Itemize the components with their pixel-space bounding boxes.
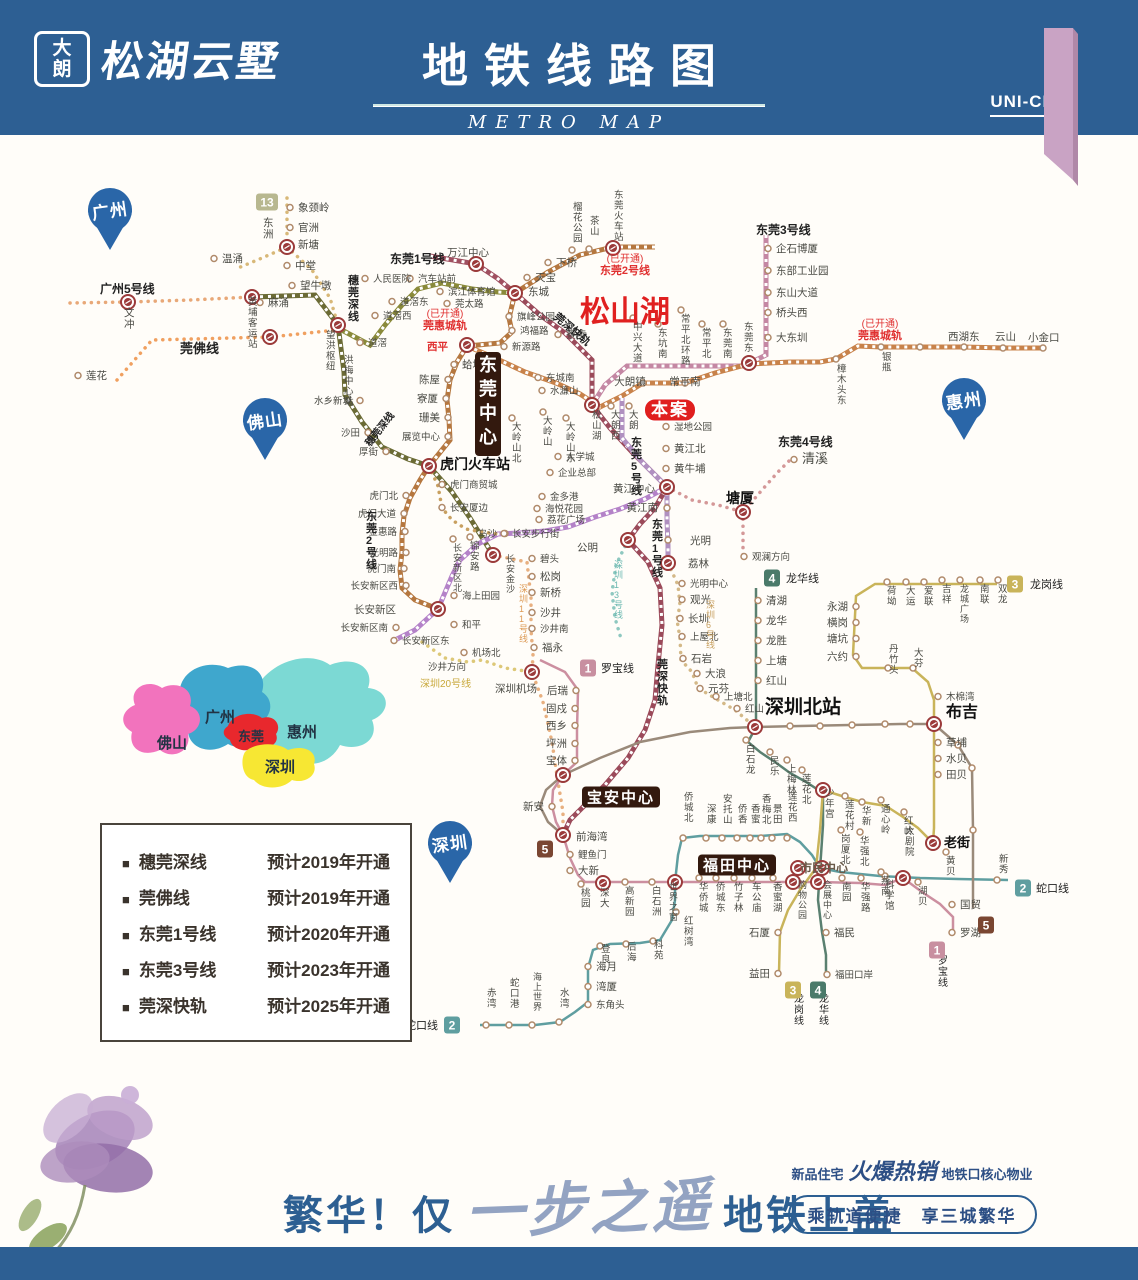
station-dot	[915, 879, 921, 885]
region-label: 佛山	[156, 734, 187, 752]
station-dot	[949, 902, 955, 908]
station-label: 东坑南	[658, 327, 668, 360]
legend-marker-icon: ■	[122, 928, 130, 943]
station-label: 益田	[749, 967, 770, 980]
station-label: 草埔	[946, 736, 967, 749]
station-dot	[910, 665, 916, 671]
station-label: 常平北	[702, 327, 712, 360]
station-dot	[362, 276, 368, 282]
station-dot	[765, 290, 771, 296]
station-dot	[401, 511, 407, 517]
station-label: 香梅北	[762, 794, 772, 826]
region-huizhou	[244, 658, 386, 764]
station-dot	[784, 835, 790, 841]
station-label: 黄江南	[627, 501, 659, 514]
station-label: 田贝	[946, 769, 967, 781]
station-label: 黄江北	[674, 442, 706, 455]
station-label: 莞惠城轨	[422, 318, 467, 332]
station-dot	[506, 314, 512, 320]
station-label: (已开通)	[862, 318, 899, 330]
station-label: 车公庙	[752, 881, 762, 914]
interchange-station	[596, 876, 610, 890]
station-label: 下桥	[556, 257, 577, 269]
metro-line-ties-dongguan-3	[592, 235, 766, 405]
station-label: 白石龙	[746, 743, 756, 776]
legend-box: ■穗莞深线预计2019年开通■莞佛线预计2019年开通■东莞1号线预计2020年…	[100, 823, 412, 1042]
station-label: 黄埔客运站	[248, 296, 258, 350]
station-label: 宝体	[546, 754, 567, 767]
station-label: 华侨城	[699, 881, 709, 914]
station-label: 穗莞深线	[347, 273, 359, 323]
metro-line-ties-dongguan-1s	[395, 487, 667, 640]
station-dot	[903, 579, 909, 585]
station-label: 深圳13号线	[614, 560, 623, 620]
station-dot	[529, 556, 535, 562]
line-number-badge: 1	[929, 942, 945, 959]
station-label: 莲花北	[802, 773, 812, 806]
station-label: 金惠路	[368, 526, 397, 538]
interchange-station	[811, 875, 825, 889]
region-shenzhen	[242, 744, 314, 787]
station-label: 福田口岸	[835, 969, 874, 981]
station-dot	[878, 869, 884, 875]
line-number-badge: 3	[785, 982, 801, 999]
interchange-station	[816, 783, 830, 797]
station-dot	[921, 579, 927, 585]
station-dot	[445, 415, 451, 421]
station-label: 广州5号线	[100, 281, 155, 296]
line-number-badge: 5	[978, 917, 994, 934]
station-label: (已开通)	[607, 253, 644, 265]
station-label: 滨江体育馆	[448, 286, 496, 298]
station-label: 龙岗线	[794, 992, 804, 1027]
legend-marker-icon: ■	[122, 856, 130, 871]
station-label: 清湖	[766, 594, 787, 607]
metro-map-poster: 大 朗 松湖云墅 地铁线路图 METRO MAP UNI-CITY 象颈岭官洲新…	[0, 0, 1138, 1280]
station-label: 寮厦	[417, 392, 438, 405]
metro-line-wanhui	[467, 346, 1043, 407]
station-label: 红岭	[904, 815, 914, 838]
interchange-station	[585, 398, 599, 412]
station-dot	[678, 307, 684, 313]
station-dot	[696, 875, 702, 881]
metro-line-dongguan-2w	[430, 256, 515, 293]
station-dot	[393, 625, 399, 631]
station-label: 湿地公园	[674, 421, 712, 433]
region-label: 东莞	[238, 729, 264, 744]
station-label: 吉祥	[942, 584, 952, 606]
station-dot	[758, 835, 764, 841]
station-dot	[969, 765, 975, 771]
legend-line-name: 莞佛线	[139, 884, 190, 909]
metro-line-dongguan-3	[592, 235, 766, 405]
legend-open-year: 预计2019年开通	[267, 884, 390, 909]
station-label: 虎门火车站	[440, 456, 510, 472]
station-label: 安托山	[723, 793, 733, 826]
station-dot	[578, 881, 584, 887]
station-label: 后海	[627, 942, 637, 964]
station-label: 石岩	[691, 652, 712, 665]
station-dot	[655, 321, 661, 327]
station-dot	[502, 531, 508, 537]
station-label: 白石洲	[652, 885, 662, 918]
station-label: 新塘	[298, 238, 319, 251]
interchange-station	[815, 861, 829, 875]
promo-calligraphy: 火爆热销	[848, 1154, 936, 1186]
city-pin-广州: 广州	[88, 188, 132, 250]
station-dot	[284, 263, 290, 269]
station-dot	[884, 579, 890, 585]
svg-text:4: 4	[815, 984, 822, 998]
interchange-station	[748, 720, 762, 734]
station-dot	[389, 299, 395, 305]
station-dot	[445, 434, 451, 440]
station-label: 罗湖	[960, 927, 981, 939]
svg-text:宝安中心: 宝安中心	[587, 789, 655, 807]
station-dot	[640, 380, 646, 386]
station-label: 侨香	[738, 803, 748, 826]
station-label: 东莞3号线	[756, 222, 811, 237]
station-dot	[679, 581, 685, 587]
interchange-station	[791, 861, 805, 875]
highlight-box: 福田中心	[698, 855, 776, 876]
station-label: 新桥	[540, 586, 561, 599]
station-label: 麻涌	[268, 296, 289, 309]
station-label: 樟木头东	[837, 363, 847, 407]
station-label: 水乡新城	[314, 395, 353, 407]
station-dot	[767, 749, 773, 755]
station-dot	[451, 362, 457, 368]
station-label: 荔花广场	[547, 514, 585, 526]
station-label: 龙胜	[766, 634, 787, 647]
station-dot	[775, 971, 781, 977]
station-dot	[437, 289, 443, 295]
interchange-station	[606, 241, 620, 255]
station-label: 乌沙	[478, 528, 498, 540]
legend-item: ■莞佛线预计2019年开通	[122, 884, 390, 909]
legend-marker-icon: ■	[122, 964, 130, 979]
station-label: 大岭山	[543, 415, 553, 448]
station-dot	[853, 654, 859, 660]
station-dot	[402, 529, 408, 535]
station-label: 横岗	[827, 616, 848, 629]
legend-marker-icon: ■	[122, 1000, 130, 1015]
station-label: 赤湾	[487, 988, 497, 1010]
station-dot	[853, 604, 859, 610]
legend-open-year: 预计2023年开通	[267, 956, 390, 981]
station-dot	[289, 283, 295, 289]
station-label: 大剧院	[905, 825, 915, 858]
station-dot	[443, 396, 449, 402]
metro-line-shenzhen-20	[422, 642, 532, 672]
station-label: 深圳11号线	[519, 584, 528, 644]
station-label: 莲花西	[788, 791, 798, 824]
station-dot	[849, 722, 855, 728]
promo-prefix: 新品住宅	[791, 1164, 843, 1183]
station-dot	[679, 634, 685, 640]
station-label: 松山湖	[592, 409, 602, 442]
svg-text:佛山: 佛山	[245, 409, 284, 434]
station-dot	[439, 482, 445, 488]
station-dot	[842, 793, 848, 799]
station-dot	[483, 1022, 489, 1028]
station-dot	[407, 276, 413, 282]
station-label: 深康	[707, 804, 717, 826]
station-label: 鸿福路	[520, 325, 549, 337]
station-dot	[585, 1002, 591, 1008]
station-label: 长安新区	[354, 603, 396, 616]
interchange-station	[926, 836, 940, 850]
interchange-station	[736, 505, 750, 519]
station-label: 福民	[834, 926, 855, 939]
station-dot	[529, 1022, 535, 1028]
station-dot	[555, 332, 561, 338]
station-dot	[858, 875, 864, 881]
svg-text:4: 4	[769, 572, 776, 586]
station-label: 沙井	[540, 606, 561, 619]
station-label: 长安厦边	[450, 502, 489, 514]
slogan-calligraphy: 一步之遥	[464, 1158, 715, 1251]
interchange-station	[896, 871, 910, 885]
station-label: 黄江中心	[613, 482, 655, 495]
station-label: 上塘北	[724, 691, 753, 703]
station-label: 企石博厦	[776, 242, 818, 255]
legend-item: ■东莞3号线预计2023年开通	[122, 956, 390, 981]
station-dot	[857, 829, 863, 835]
station-dot	[734, 706, 740, 712]
station-dot	[622, 879, 628, 885]
station-label: 荔林	[688, 557, 709, 570]
station-label: 侨城东	[716, 881, 726, 914]
station-dot	[787, 723, 793, 729]
station-label: 龙城广场	[960, 583, 969, 624]
metro-line-wanfo	[117, 330, 336, 380]
station-label: 水濂山	[550, 385, 579, 397]
station-label: 大学城	[566, 451, 595, 463]
station-dot	[853, 636, 859, 642]
station-label: 购物公园	[798, 879, 807, 920]
highlight-box: 本案	[644, 399, 696, 422]
interchange-station	[927, 717, 941, 731]
station-dot	[623, 941, 629, 947]
station-label: 桃园	[581, 887, 591, 910]
station-label: 水贝	[946, 753, 967, 765]
line-number-badge: 4	[764, 570, 780, 587]
region-guangzhou	[174, 665, 270, 750]
station-label: 鲤鱼门	[578, 849, 607, 861]
station-dot	[461, 650, 467, 656]
station-label: 和平	[462, 620, 482, 631]
station-dot	[949, 930, 955, 936]
metro-line-wanshen-express	[515, 293, 667, 835]
station-label: 新秀	[999, 853, 1009, 876]
station-label: 沙井方向	[428, 661, 466, 673]
metro-line-shenzhen-11	[493, 555, 563, 835]
station-label: 海悦花园	[545, 503, 583, 515]
station-label: 龙华线	[819, 992, 829, 1027]
station-label: 银瓶	[882, 351, 892, 374]
station-dot	[403, 583, 409, 589]
metro-line-ties-wanshen-express	[515, 293, 667, 835]
station-dot	[509, 415, 515, 421]
line-number-badge: 2	[1015, 880, 1031, 897]
station-dot	[765, 246, 771, 252]
station-dot	[1000, 345, 1006, 351]
station-label: 大运	[906, 585, 916, 608]
station-label: 天宝	[535, 271, 556, 284]
station-dot	[747, 835, 753, 841]
metro-line-longhua-4	[748, 588, 826, 974]
station-label: 登良	[601, 944, 611, 966]
station-label: 燕南	[881, 875, 891, 898]
station-dot	[784, 757, 790, 763]
metro-line-ties-dongguan-5	[622, 398, 668, 563]
station-dot	[731, 875, 737, 881]
station-label: 大浪	[705, 667, 726, 680]
station-dot	[720, 321, 726, 327]
station-dot	[694, 671, 700, 677]
station-label: 榴花公园	[573, 201, 583, 245]
station-label: 黄贝	[946, 855, 956, 878]
interchange-station	[525, 665, 539, 679]
station-label: 金多港	[550, 491, 579, 503]
station-label: 香蜜	[751, 804, 761, 826]
station-dot	[540, 409, 546, 415]
metro-line-huanzhong-5	[540, 724, 973, 908]
station-label: 常平北环路	[681, 313, 691, 367]
station-dot	[743, 737, 749, 743]
station-label: 蛤地	[462, 358, 483, 371]
station-label: 东莞2号线	[365, 509, 377, 571]
station-label: 红山	[745, 703, 764, 715]
station-dot	[626, 403, 632, 409]
station-label: 黄牛埔	[674, 462, 706, 475]
station-label: 大岭山东	[566, 421, 576, 465]
city-pin-佛山: 佛山	[243, 398, 287, 460]
svg-text:5: 5	[542, 843, 549, 857]
station-dot	[833, 356, 839, 362]
station-dot	[679, 597, 685, 603]
station-dot	[383, 449, 389, 455]
station-dot	[547, 470, 553, 476]
station-dot	[741, 554, 747, 560]
station-label: 老街	[943, 835, 970, 850]
interchange-station	[280, 240, 294, 254]
station-label: 东部工业园	[776, 264, 829, 277]
station-dot	[451, 622, 457, 628]
station-dot	[853, 620, 859, 626]
station-label: 机场北	[472, 647, 501, 659]
station-label: 高新园	[625, 885, 635, 918]
station-label: 莞惠城轨	[857, 328, 902, 342]
station-dot	[663, 446, 669, 452]
slogan-part1: 繁华！仅	[283, 1183, 455, 1241]
station-label: 上梅林	[787, 764, 797, 796]
station-label: 文冲	[124, 306, 135, 331]
station-label: 新源路	[512, 341, 541, 353]
station-label: 旗峰公园	[517, 311, 555, 323]
metro-line-suiwanshen	[252, 295, 493, 555]
svg-text:3: 3	[790, 984, 797, 998]
station-label: 光明中心	[690, 578, 729, 590]
interchange-station	[121, 295, 135, 309]
station-dot	[770, 875, 776, 881]
station-dot	[943, 849, 949, 855]
city-pin-惠州: 惠州	[942, 378, 986, 440]
station-dot	[524, 275, 530, 281]
station-label: 华强路	[861, 881, 871, 914]
station-label: 六约	[827, 650, 848, 663]
svg-text:福田中心: 福田中心	[702, 857, 771, 875]
station-label: 上屋北	[690, 632, 719, 643]
station-label: 桥头西	[776, 307, 808, 319]
station-label: 汽车站前	[418, 273, 456, 285]
svg-text:13: 13	[260, 196, 274, 210]
metro-line-shekou-2	[480, 834, 1008, 1025]
station-label: 长安新区东	[402, 635, 450, 647]
station-label: 寮步	[566, 328, 587, 341]
station-label: 东莞4号线	[778, 434, 833, 449]
station-label: 道滘东	[400, 296, 429, 308]
line-number-badge: 2	[444, 1017, 460, 1034]
station-label: 长安新区南	[340, 622, 388, 634]
station-label: 象颈岭	[298, 201, 330, 214]
station-label: 东莞火车站	[614, 189, 624, 243]
station-label: 珊美	[419, 411, 440, 424]
interchange-station	[486, 548, 500, 562]
interchange-station	[786, 875, 800, 889]
region-foshan	[123, 684, 200, 754]
station-label: 长安新区西	[350, 580, 398, 592]
region-label: 深圳	[265, 758, 295, 776]
station-label: 沙田	[341, 428, 360, 439]
station-label: 大朗西	[611, 409, 621, 442]
legend-marker-icon: ■	[122, 892, 130, 907]
unicity-label: UNI-CITY	[990, 92, 1072, 117]
interchange-station	[460, 338, 474, 352]
station-label: 科学馆	[885, 879, 895, 912]
station-label: 双龙	[998, 584, 1008, 606]
station-label: 常平南	[669, 375, 701, 388]
station-dot	[665, 537, 671, 543]
station-dot	[765, 310, 771, 316]
metro-line-dongguan-4	[667, 457, 793, 512]
title-block: 地铁线路图 METRO MAP	[0, 30, 1138, 133]
station-dot	[555, 454, 561, 460]
station-label: 长安新区北	[453, 542, 462, 593]
station-label: 松山湖	[580, 296, 670, 329]
station-label: 海上田园	[462, 590, 500, 602]
station-dot	[839, 875, 845, 881]
station-label: 侨城北	[684, 791, 694, 824]
svg-text:深圳: 深圳	[431, 832, 469, 857]
station-dot	[977, 577, 983, 583]
station-label: 元芬	[708, 683, 729, 695]
station-label: 丹竹头	[889, 644, 899, 676]
station-label: 竹子林	[734, 881, 744, 914]
metro-line-shenzhen-6	[668, 563, 755, 727]
station-dot	[713, 694, 719, 700]
station-dot	[391, 638, 397, 644]
station-label: 科苑	[654, 939, 664, 962]
svg-text:2: 2	[1020, 882, 1027, 896]
station-label: 景田	[773, 804, 783, 826]
station-dot	[703, 835, 709, 841]
station-label: 南联	[980, 583, 990, 606]
station-label: 莞太路	[455, 298, 484, 310]
station-label: 企业总部	[558, 467, 596, 479]
city-pin-深圳: 深圳	[428, 821, 472, 883]
